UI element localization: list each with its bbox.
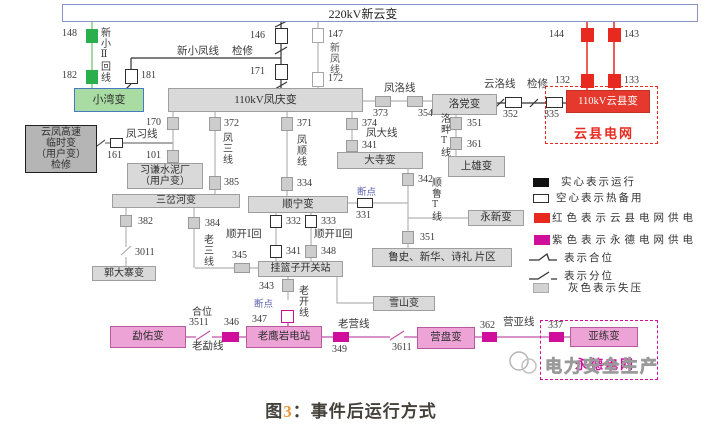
breaker-342	[402, 173, 414, 186]
bus-220kv-xinyun: 220kV新云变	[62, 4, 698, 22]
label-breaker-335: 335	[544, 110, 559, 120]
label-switch-3011: 3011	[135, 248, 155, 258]
label-breaker-347: 347	[252, 315, 267, 325]
region-label-yunxian: 云县电网	[574, 123, 634, 142]
line-label-laosan: 老三线	[201, 234, 212, 267]
line-label-fengluo: 凤洛线	[384, 84, 416, 95]
breaker-331	[357, 198, 373, 208]
switch-open-3511	[196, 331, 210, 340]
substation-shangxiong: 上雄变	[448, 156, 505, 177]
label-breaker-331: 331	[356, 211, 371, 221]
label-breaker-348: 348	[321, 247, 336, 257]
label-breaker-351-lushi: 351	[420, 233, 435, 243]
breaker-182	[86, 70, 98, 84]
label-breaker-346: 346	[224, 318, 239, 328]
breaker-144	[581, 28, 594, 42]
legend-swatch-magenta	[534, 235, 550, 245]
power-grid-diagram: 220kV新云变 148 新小Ⅱ回线 182 小湾变 新小凤线 检修 181 1…	[0, 0, 702, 427]
label-breaker-148: 148	[62, 29, 77, 39]
label-maintenance-xinxiaofeng: 检修	[232, 47, 253, 58]
breaker-348	[305, 245, 317, 258]
line-label-laoying: 老营线	[338, 320, 370, 331]
breaker-181	[125, 69, 138, 84]
legend-label-red: 红色表示云县电网供电	[552, 214, 697, 225]
line-label-shunlu-t: 顺鲁T线	[429, 177, 440, 222]
caption-number: 3	[283, 402, 293, 421]
legend-label-solid: 实心表示运行	[561, 178, 636, 189]
substation-guodazhai: 郭大寨变	[92, 266, 156, 281]
legend-closed-switch-icon	[528, 252, 558, 264]
label-breaker-181: 181	[141, 71, 156, 81]
line-label-laokai: 老开线	[296, 285, 307, 318]
breaker-341-fengda	[346, 140, 358, 152]
breaker-161	[110, 138, 123, 148]
line-label-yunluo: 云洛线	[484, 80, 516, 91]
substation-yunfeng-temp: 云凤高速 临时变 （用户变） 检修	[25, 125, 97, 173]
legend-label-gray: 灰色表示失压	[568, 284, 643, 295]
breaker-170	[167, 117, 179, 130]
breaker-332	[270, 215, 282, 228]
breaker-172	[312, 72, 324, 87]
label-breaker-143: 143	[624, 30, 639, 40]
line-label-fengda: 凤大线	[366, 129, 398, 140]
breaker-147	[312, 28, 324, 43]
breaker-345	[234, 263, 250, 273]
breaker-371	[281, 117, 293, 131]
breaker-349	[333, 332, 349, 342]
breaker-341-shunkai	[270, 245, 282, 258]
caption-text: ：事件后运行方式	[293, 402, 437, 421]
label-breaker-101: 101	[146, 151, 161, 161]
breaker-382	[120, 215, 132, 227]
label-maintenance-yunluo: 检修	[527, 80, 548, 91]
label-breaker-334: 334	[297, 179, 312, 189]
breaker-334	[281, 177, 293, 191]
label-breakpoint-347: 断点	[254, 301, 273, 311]
breaker-361	[450, 137, 462, 150]
watermark-text: 电力安全生产	[545, 352, 659, 377]
label-breaker-385: 385	[224, 178, 239, 188]
area-lushi-xinhua-shili: 鲁史、新华、诗礼 片区	[372, 248, 512, 267]
label-breaker-333: 333	[321, 217, 336, 227]
legend-label-closed: 表示合位	[564, 254, 614, 265]
legend-label-open: 表示分位	[564, 272, 614, 283]
label-breaker-182: 182	[62, 71, 77, 81]
substation-gualanzi: 挂篮子开关站	[258, 261, 343, 277]
legend-swatch-hollow	[533, 194, 549, 203]
figure-caption: 图3：事件后运行方式	[0, 397, 702, 422]
breaker-374	[346, 118, 358, 130]
substation-sanchahe: 三岔河变	[112, 194, 240, 208]
substation-shunning: 顺宁变	[248, 196, 348, 213]
breaker-101	[167, 150, 179, 163]
line-label-yingya: 营亚线	[503, 318, 535, 329]
label-breaker-146: 146	[250, 31, 265, 41]
breaker-362	[482, 332, 497, 342]
substation-xiqian: 习谦水泥厂 （用户变）	[127, 163, 203, 189]
bus-label: 220kV新云变	[329, 5, 398, 22]
substation-yongxin: 永新变	[468, 210, 524, 226]
legend-swatch-red	[534, 213, 550, 223]
breaker-346	[222, 332, 239, 342]
label-breaker-345: 345	[232, 251, 247, 261]
line-label-fengxi: 凤习线	[126, 130, 158, 141]
breaker-171	[275, 64, 288, 80]
line-label-shunkai1: 顺开Ⅰ回	[226, 230, 262, 241]
breaker-333	[305, 215, 317, 228]
label-breaker-384: 384	[205, 219, 220, 229]
line-label-fengsan: 凤三线	[220, 132, 231, 165]
label-breaker-147: 147	[328, 30, 343, 40]
line-label-xinxiaofeng: 新小凤线	[177, 47, 219, 58]
label-breaker-332: 332	[286, 217, 301, 227]
line-label-fengshun: 凤顺线	[294, 134, 305, 167]
label-breaker-362: 362	[480, 321, 495, 331]
line-label-shunkai2: 顺开Ⅱ回	[314, 230, 353, 241]
label-breaker-161: 161	[107, 151, 122, 161]
label-breaker-372: 372	[224, 119, 239, 129]
breaker-372	[209, 117, 221, 131]
caption-fig: 图	[265, 402, 283, 421]
breaker-384	[188, 217, 200, 229]
label-switch-3611: 3611	[392, 343, 412, 353]
breaker-352	[505, 97, 522, 108]
switch-open-3011	[121, 246, 131, 255]
label-breaker-172: 172	[328, 74, 343, 84]
substation-laoyingyan: 老鹰岩电站	[246, 326, 322, 348]
legend-open-switch-icon	[528, 270, 558, 282]
breaker-347	[281, 310, 294, 323]
substation-fengqing: 110kV凤庆变	[168, 88, 363, 112]
legend-label-hollow: 空心表示热备用	[556, 194, 644, 205]
breaker-146	[275, 28, 288, 44]
label-switch-3511: 3511	[189, 318, 209, 328]
label-breaker-354: 354	[418, 109, 433, 119]
breaker-351-lushi	[402, 231, 414, 244]
label-breaker-371: 371	[297, 119, 312, 129]
line-label-xinxiao2: 新小Ⅱ回线	[98, 27, 109, 83]
line-label-xinfeng: 新凤线	[327, 42, 338, 75]
label-breaker-133: 133	[624, 76, 639, 86]
substation-mengyou: 勐佑变	[110, 326, 186, 348]
breaker-351-luopan	[450, 117, 462, 130]
breaker-335	[546, 97, 563, 108]
breaker-385	[209, 176, 221, 190]
legend-swatch-gray	[533, 283, 549, 293]
label-breaker-341-fengda: 341	[362, 141, 377, 151]
substation-yingpan: 营盘变	[417, 327, 475, 349]
switch-open-3611	[390, 331, 404, 340]
substation-xueshan: 雪山变	[373, 296, 435, 311]
breaker-148	[86, 29, 98, 43]
label-breaker-170: 170	[146, 118, 161, 128]
label-breaker-352: 352	[503, 110, 518, 120]
label-breaker-132: 132	[555, 76, 570, 86]
label-breaker-361: 361	[467, 140, 482, 150]
legend-label-magenta: 紫色表示永德电网供电	[552, 236, 697, 247]
breaker-373	[375, 96, 391, 107]
label-breaker-171: 171	[250, 67, 265, 77]
wire-fengxi	[97, 140, 173, 146]
label-breaker-341-shunkai: 341	[286, 247, 301, 257]
breaker-354	[407, 96, 423, 107]
substation-luodang: 洛党变	[432, 94, 497, 115]
breaker-343	[282, 279, 294, 292]
substation-yalian: 亚练变	[570, 327, 638, 347]
label-breaker-144: 144	[549, 30, 564, 40]
legend-swatch-solid	[533, 178, 549, 187]
line-label-laomeng: 老勐线	[192, 342, 224, 353]
substation-dasi: 大寺变	[337, 152, 423, 169]
breaker-143	[608, 28, 621, 42]
label-breaker-351-luopan: 351	[467, 119, 482, 129]
substation-yunxian: 110kV云县变	[566, 90, 650, 113]
label-breaker-382: 382	[138, 217, 153, 227]
substation-xiaowan: 小湾变	[74, 88, 144, 112]
watermark-logo-icon	[505, 348, 543, 378]
label-breaker-343: 343	[259, 282, 274, 292]
line-label-luopan-t: 洛畔T线	[438, 113, 449, 158]
label-breaker-349: 349	[332, 345, 347, 355]
